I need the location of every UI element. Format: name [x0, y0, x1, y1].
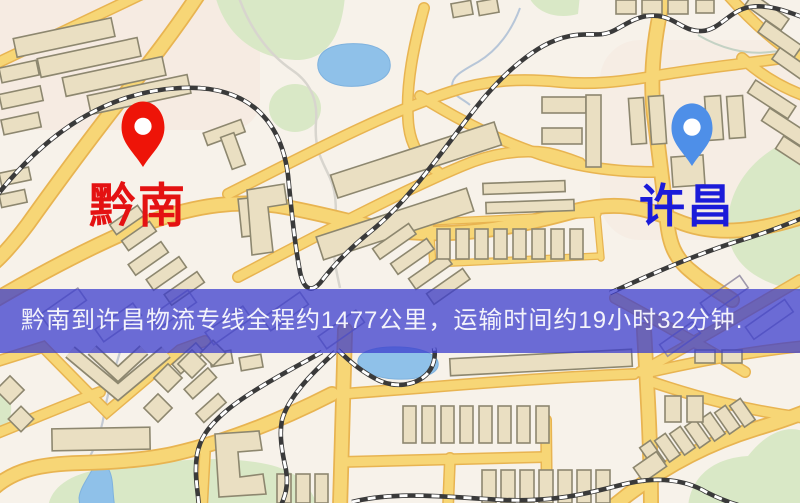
- destination-label: 许昌: [639, 180, 735, 232]
- route-map-canvas: 黔南 许昌: [0, 0, 800, 503]
- origin-pin-hole: [134, 118, 151, 135]
- route-summary-text: 黔南到许昌物流专线全程约1477公里，运输时间约19小时32分钟.: [21, 307, 743, 334]
- origin-label: 黔南: [89, 179, 187, 232]
- logistics-route-map-screenshot: 黔南 许昌 黔南到许昌物流专线全程约1477公里，运输时间约19小时32分钟.: [0, 0, 800, 503]
- destination-pin-hole: [683, 118, 700, 135]
- route-summary-banner: 黔南到许昌物流专线全程约1477公里，运输时间约19小时32分钟.: [0, 289, 800, 353]
